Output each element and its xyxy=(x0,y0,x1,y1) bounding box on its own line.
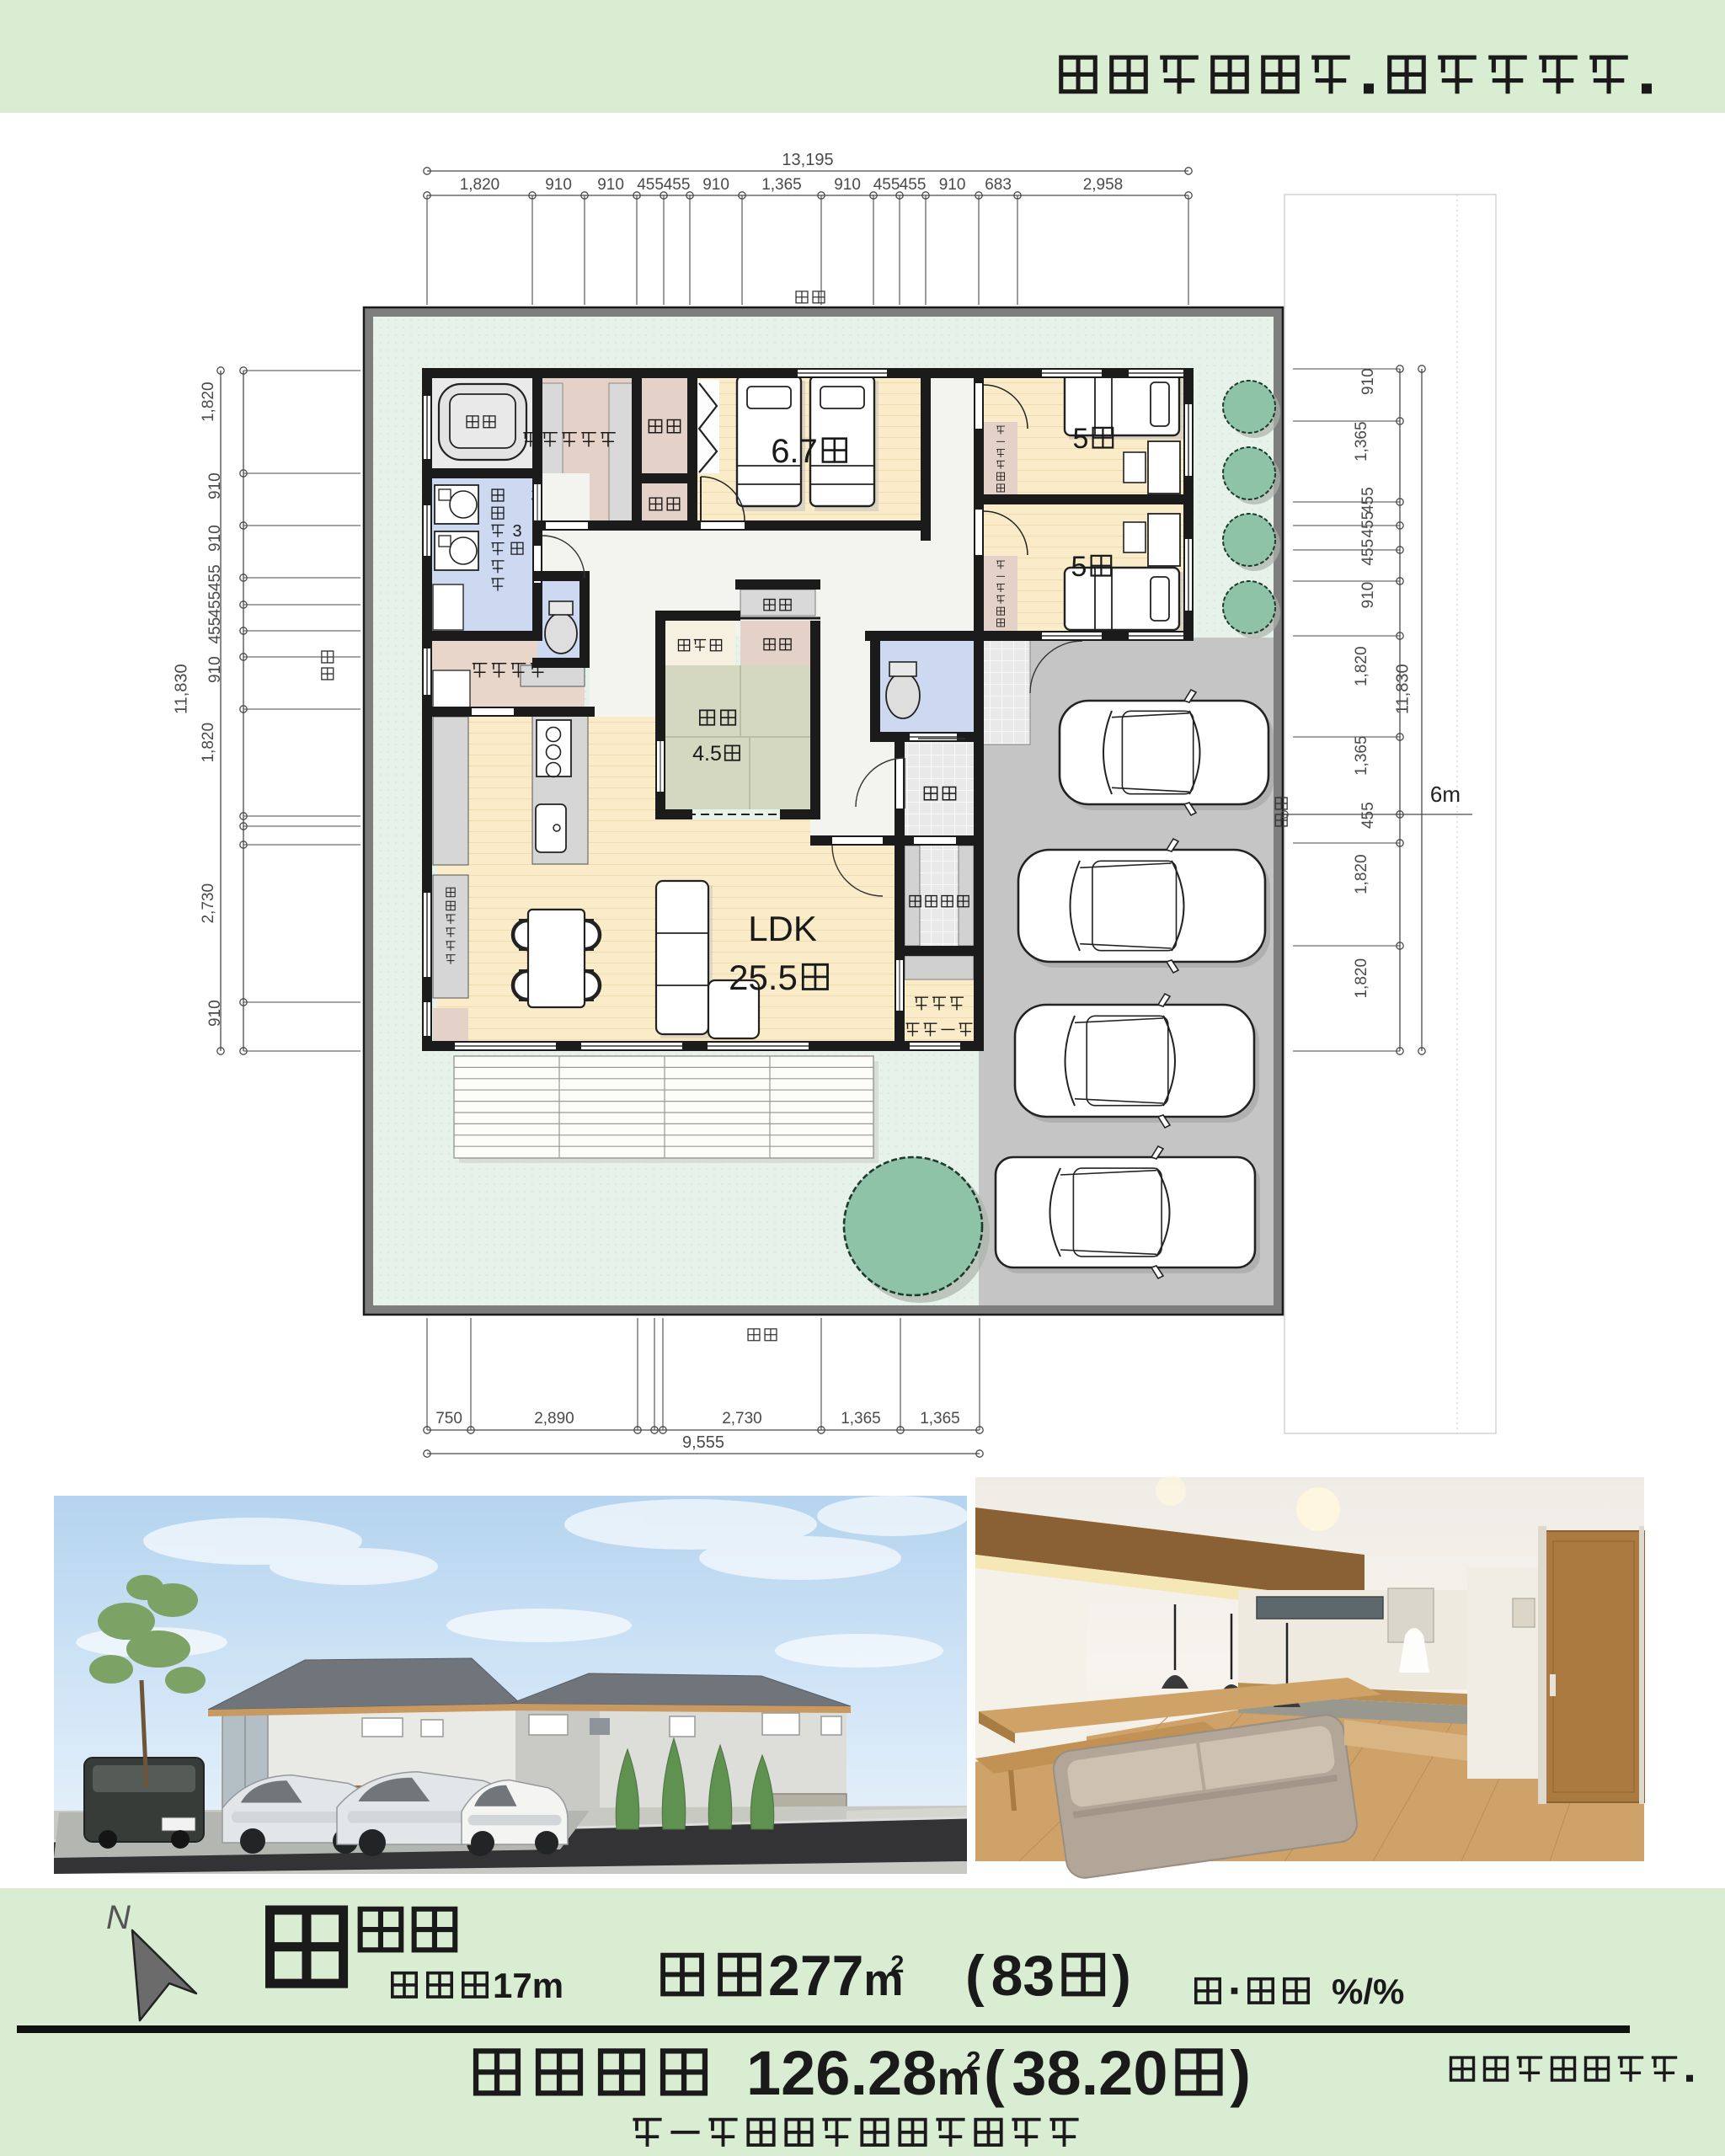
svg-text:11,830: 11,830 xyxy=(172,664,190,714)
svg-text:LDK: LDK xyxy=(748,909,817,948)
svg-text:910: 910 xyxy=(206,472,224,499)
svg-text:6.7: 6.7 xyxy=(771,433,818,470)
svg-text:2,730: 2,730 xyxy=(722,1410,762,1428)
svg-text:277: 277 xyxy=(768,1944,863,2008)
svg-text:455: 455 xyxy=(900,176,927,194)
svg-text:1,820: 1,820 xyxy=(1353,646,1370,686)
svg-text:455: 455 xyxy=(1359,511,1377,538)
svg-text:910: 910 xyxy=(206,656,224,683)
svg-text:455: 455 xyxy=(206,617,224,644)
svg-text:3: 3 xyxy=(512,522,521,541)
svg-text:2,730: 2,730 xyxy=(200,883,217,924)
svg-text:13,195: 13,195 xyxy=(782,151,833,169)
svg-text:1,820: 1,820 xyxy=(1353,854,1370,894)
svg-text:5: 5 xyxy=(1071,551,1087,583)
svg-text:1,820: 1,820 xyxy=(1353,958,1370,999)
svg-text:1,820: 1,820 xyxy=(460,176,500,194)
svg-text:11,830: 11,830 xyxy=(1393,664,1412,714)
svg-text:25.5: 25.5 xyxy=(729,958,798,997)
svg-text:910: 910 xyxy=(206,525,224,552)
svg-text:5: 5 xyxy=(1073,423,1089,455)
svg-text:9,555: 9,555 xyxy=(682,1433,724,1452)
svg-text:17m: 17m xyxy=(493,1966,563,2005)
svg-text:2,890: 2,890 xyxy=(534,1410,574,1428)
svg-text:750: 750 xyxy=(435,1410,462,1428)
svg-text:1,365: 1,365 xyxy=(761,176,802,194)
svg-text:N: N xyxy=(106,1899,131,1936)
svg-text:): ) xyxy=(1230,2038,1251,2108)
svg-text:910: 910 xyxy=(834,176,861,194)
svg-text:38.20: 38.20 xyxy=(1012,2038,1167,2108)
svg-text:683: 683 xyxy=(985,176,1012,194)
svg-text:126.28: 126.28 xyxy=(746,2038,937,2108)
svg-text:1,365: 1,365 xyxy=(1353,421,1370,462)
svg-text:): ) xyxy=(1112,1944,1131,2008)
svg-text:455: 455 xyxy=(1359,539,1377,566)
svg-text:455: 455 xyxy=(637,176,664,194)
svg-text:910: 910 xyxy=(939,176,966,194)
svg-text:910: 910 xyxy=(1359,582,1377,609)
svg-text:2,958: 2,958 xyxy=(1083,176,1124,194)
svg-text:455: 455 xyxy=(206,564,224,591)
svg-text:455: 455 xyxy=(1359,487,1377,514)
svg-text:%/%: %/% xyxy=(1332,1972,1404,2011)
svg-text:1,365: 1,365 xyxy=(841,1410,881,1428)
svg-text:1,820: 1,820 xyxy=(200,723,217,763)
svg-text:910: 910 xyxy=(1359,368,1377,395)
svg-text:455: 455 xyxy=(664,176,691,194)
svg-text:455: 455 xyxy=(1359,802,1377,829)
svg-text:455: 455 xyxy=(206,591,224,618)
svg-text:455: 455 xyxy=(873,176,900,194)
svg-text:910: 910 xyxy=(206,1000,224,1027)
svg-text:1,365: 1,365 xyxy=(920,1410,960,1428)
svg-text:910: 910 xyxy=(702,176,729,194)
svg-text:910: 910 xyxy=(545,176,572,194)
svg-text:1,820: 1,820 xyxy=(200,382,217,422)
svg-text:(: ( xyxy=(984,2038,1005,2108)
svg-text:4.5: 4.5 xyxy=(692,742,722,766)
svg-text:83: 83 xyxy=(991,1944,1055,2008)
svg-text:6m: 6m xyxy=(1430,782,1461,807)
svg-text:910: 910 xyxy=(597,176,624,194)
svg-text:(: ( xyxy=(965,1944,985,2008)
svg-text:1,365: 1,365 xyxy=(1353,735,1370,776)
svg-text:2: 2 xyxy=(966,2046,980,2075)
svg-text:2: 2 xyxy=(890,1951,904,1978)
